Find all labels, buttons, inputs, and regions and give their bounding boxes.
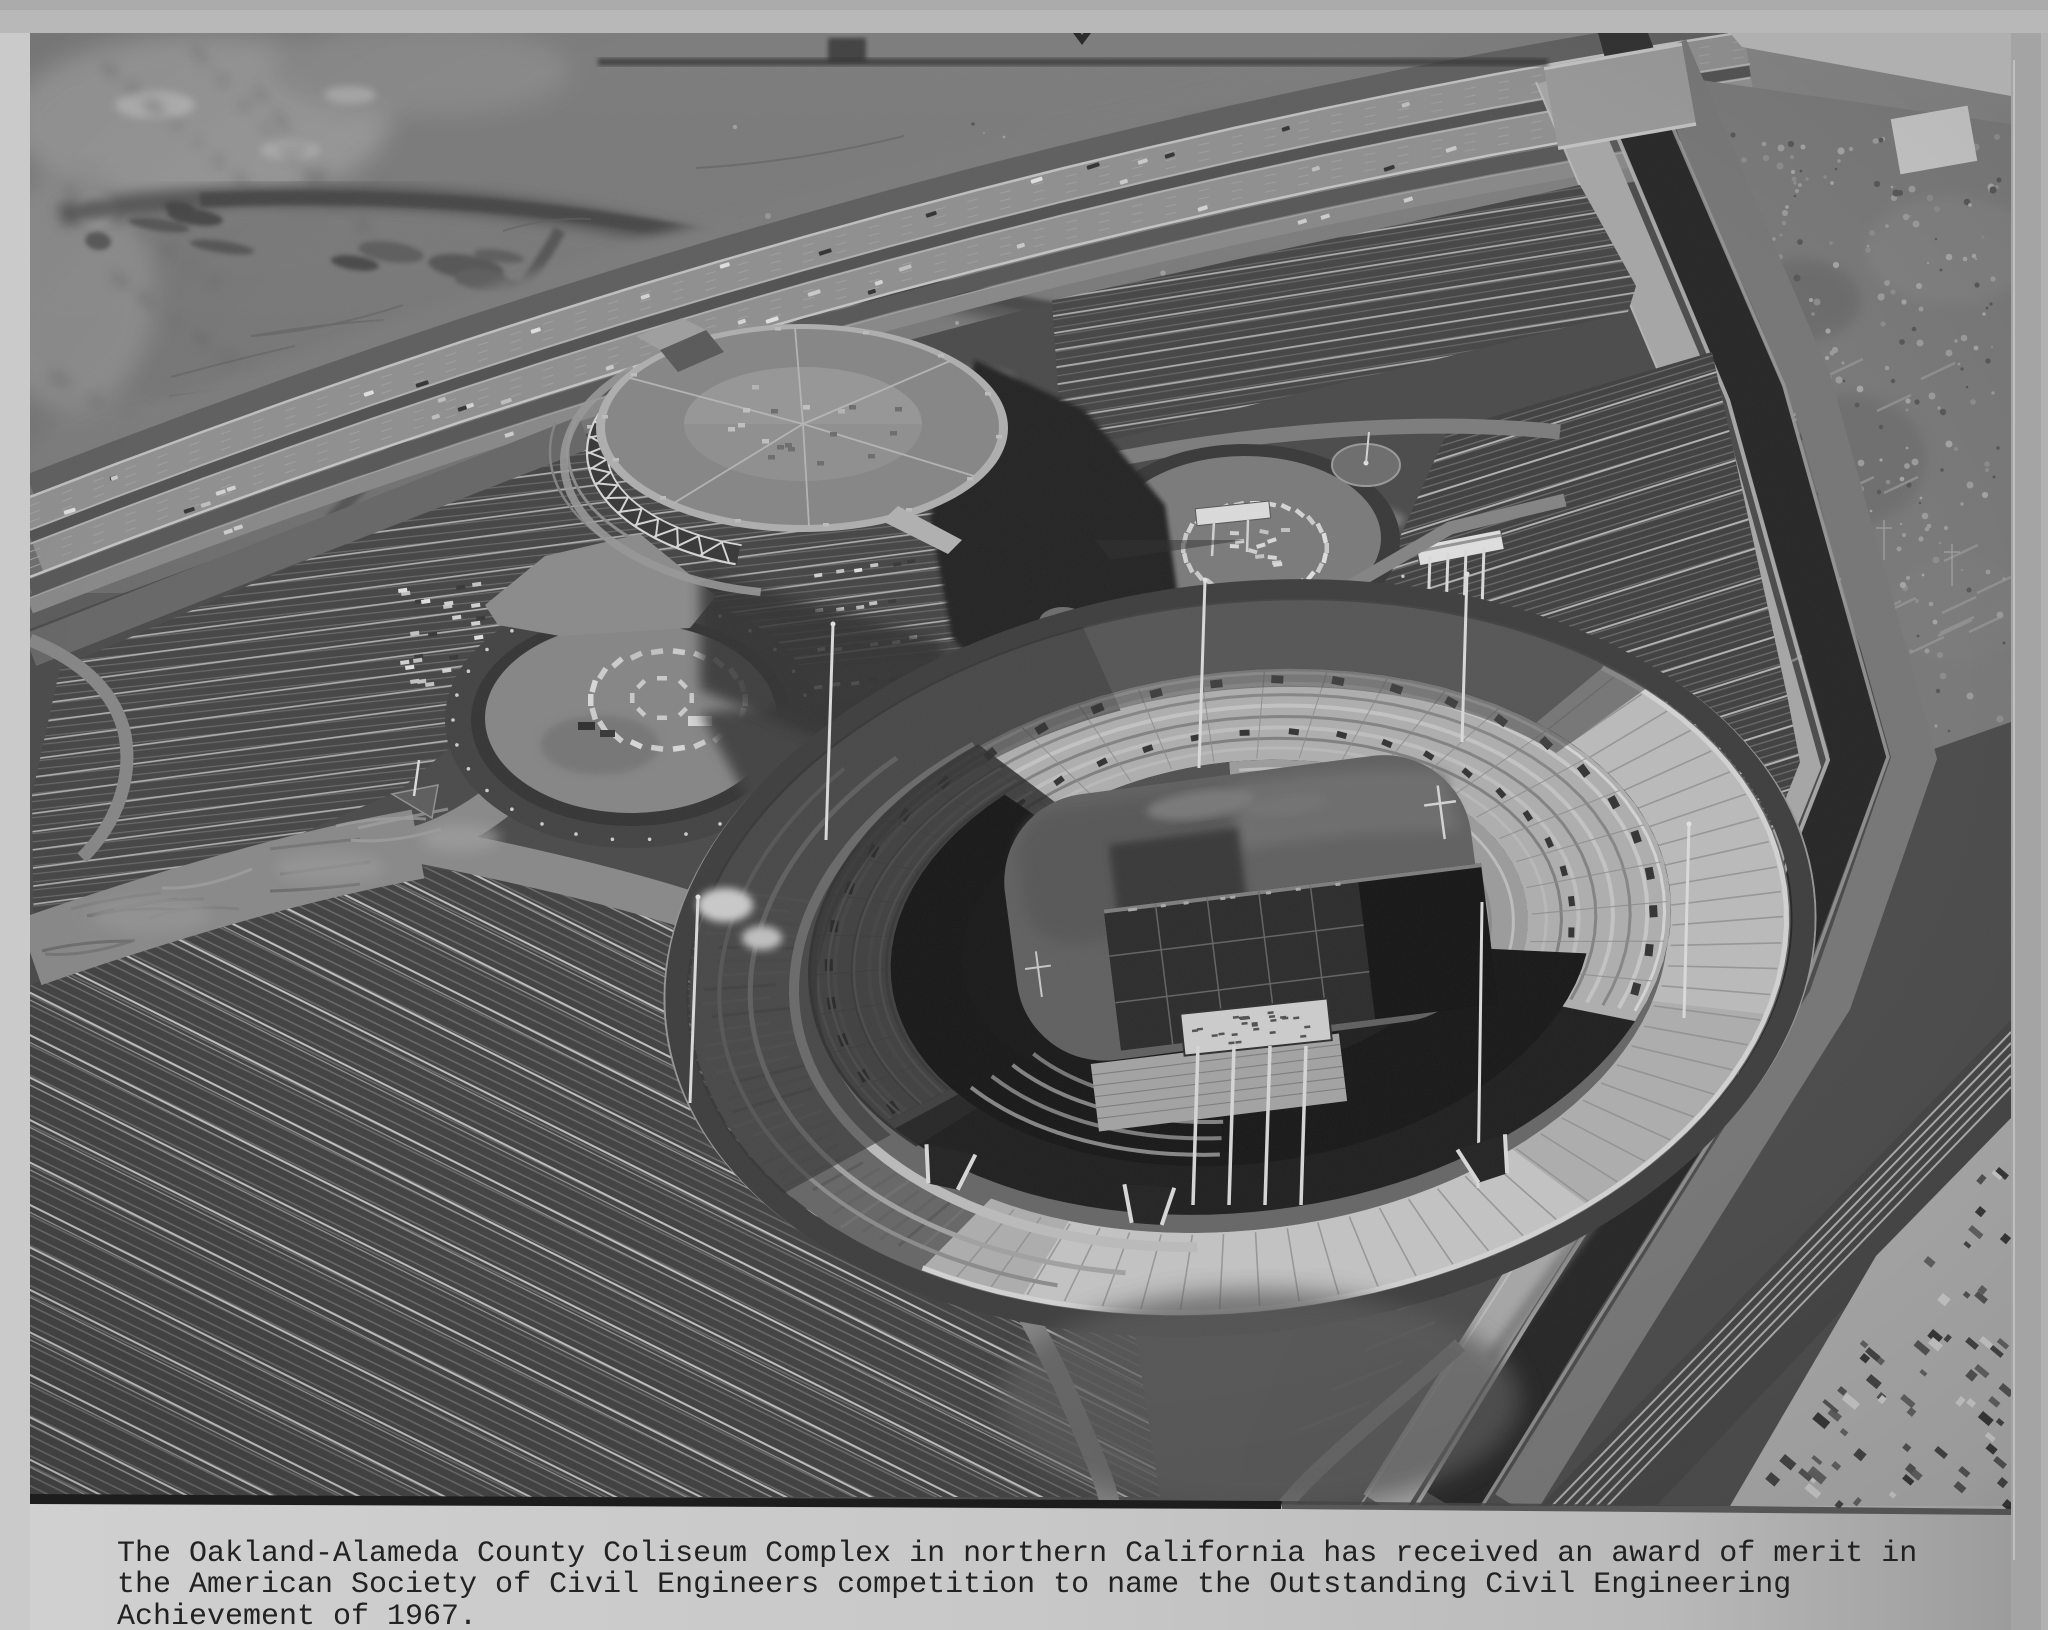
svg-text:The Oakland-Alameda County Col: The Oakland-Alameda County Coliseum Comp… (117, 1537, 1917, 1571)
svg-text:the American Society of Civil: the American Society of Civil Engineers … (117, 1568, 1791, 1602)
svg-text:Achievement of 1967.: Achievement of 1967. (117, 1600, 477, 1630)
